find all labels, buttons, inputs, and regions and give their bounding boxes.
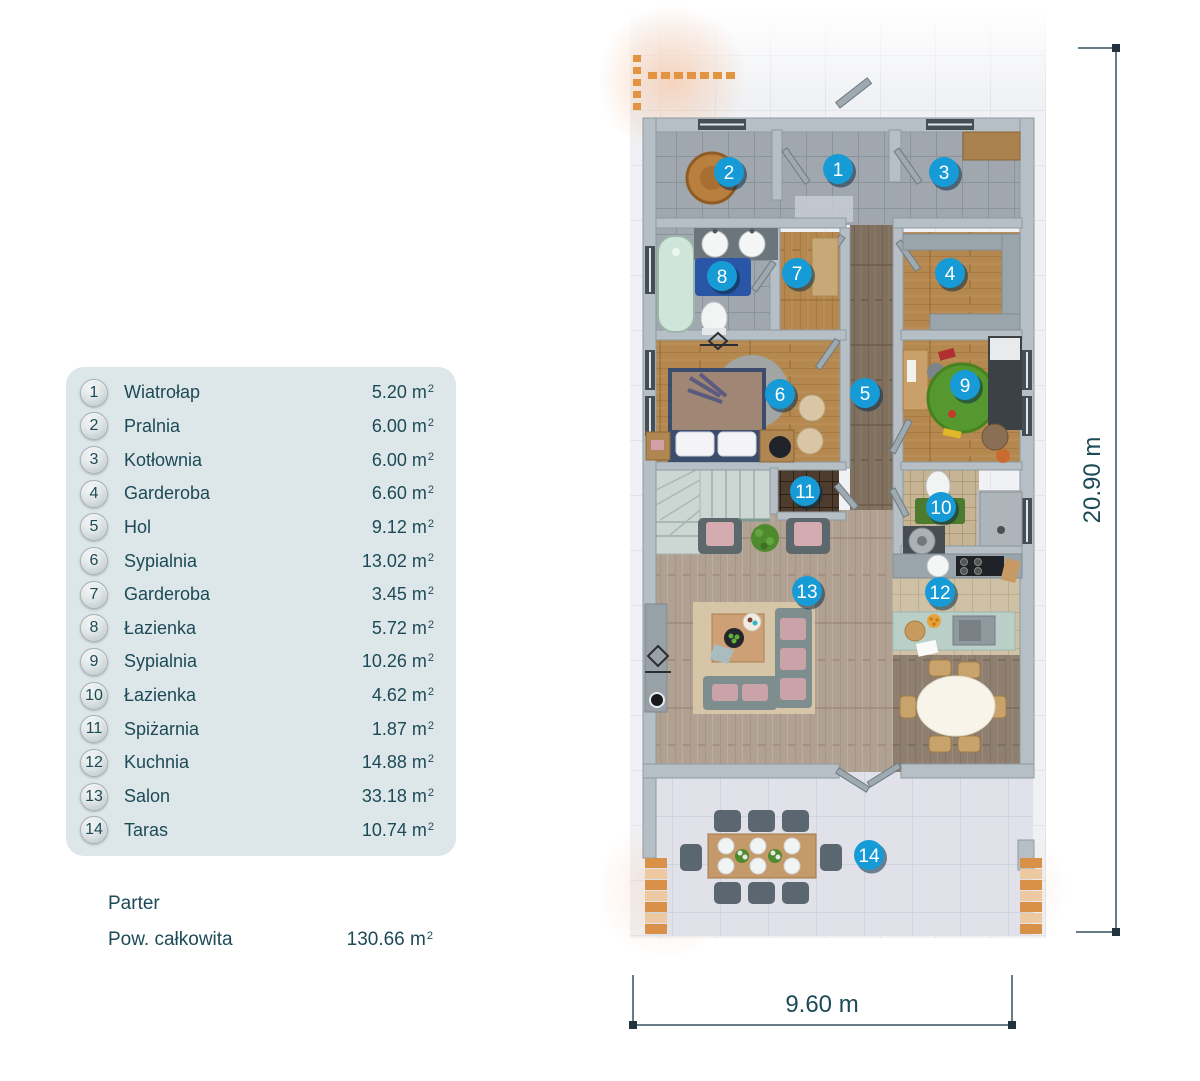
legend-room-name: Sypialnia: [124, 651, 362, 672]
legend-number-badge: 7: [80, 581, 108, 609]
legend-room-area: 6.00 m2: [372, 450, 434, 471]
sofa-pillow: [780, 648, 806, 670]
legend-room-area: 1.87 m2: [372, 719, 434, 740]
svg-text:11: 11: [795, 482, 815, 503]
legend-number-badge: 5: [80, 513, 108, 541]
terrace-chair: [820, 844, 842, 871]
dining-table: [917, 676, 995, 736]
legend-room-area: 6.60 m2: [372, 483, 434, 504]
legend-room-name: Salon: [124, 786, 362, 807]
legend-number-badge: 11: [80, 715, 108, 743]
legend-room-name: Hol: [124, 517, 372, 538]
legend-number-badge: 14: [80, 816, 108, 844]
pillows: [676, 432, 714, 456]
chair: [900, 696, 916, 718]
legend-number-badge: 3: [80, 446, 108, 474]
chair: [929, 736, 951, 752]
chair: [929, 660, 951, 676]
pouf: [982, 424, 1008, 450]
plate: [718, 838, 734, 854]
legend-room-name: Kotłownia: [124, 450, 372, 471]
legend-row: 8 Łazienka 5.72 m2: [74, 613, 434, 643]
legend-row: 3 Kotłownia 6.00 m2: [74, 445, 434, 475]
svg-text:8: 8: [717, 267, 728, 288]
legend-room-area: 4.62 m2: [372, 685, 434, 706]
pouf: [799, 395, 825, 421]
armchair: [786, 518, 830, 554]
legend-room-name: Kuchnia: [124, 752, 362, 773]
legend-row: 11 Spiżarnia 1.87 m2: [74, 714, 434, 744]
bowl: [927, 614, 941, 628]
dimension-width-label: 9.60 m: [785, 991, 858, 1018]
pouf: [797, 428, 823, 454]
pillows: [718, 432, 756, 456]
legend-room-name: Pralnia: [124, 416, 372, 437]
svg-text:3: 3: [939, 163, 950, 184]
legend-row: 13 Salon 33.18 m2: [74, 782, 434, 812]
legend-room-area: 13.02 m2: [362, 551, 434, 572]
terrace-chair: [714, 882, 741, 904]
legend-room-area: 3.45 m2: [372, 584, 434, 605]
legend-number-badge: 1: [80, 379, 108, 407]
svg-text:7: 7: [792, 264, 803, 285]
legend-room-area: 5.72 m2: [372, 618, 434, 639]
svg-text:10: 10: [930, 498, 951, 519]
legend-row: 1 Wiatrołap 5.20 m2: [74, 378, 434, 408]
legend-row: 9 Sypialnia 10.26 m2: [74, 647, 434, 677]
legend-room-area: 14.88 m2: [362, 752, 434, 773]
plate: [718, 858, 734, 874]
dimension-height-label: 20.90 m: [1079, 437, 1106, 524]
sofa-pillow: [712, 684, 738, 701]
legend-room-name: Sypialnia: [124, 551, 362, 572]
legend-room-area: 10.26 m2: [362, 651, 434, 672]
legend-room-name: Łazienka: [124, 685, 372, 706]
plate: [750, 838, 766, 854]
terrace-chair: [782, 810, 809, 832]
floor-plan: 1234567891011121314 20.90 m 9.60 m: [600, 0, 1200, 1081]
tray: [724, 628, 744, 648]
svg-text:13: 13: [796, 582, 817, 603]
legend-room-area: 33.18 m2: [362, 786, 434, 807]
svg-text:2: 2: [724, 163, 735, 184]
legend-room-name: Garderoba: [124, 584, 372, 605]
total-area-line: Pow. całkowita 130.66 m2: [108, 929, 433, 951]
sofa-pillow: [780, 618, 806, 640]
plate: [743, 613, 761, 631]
svg-text:12: 12: [929, 583, 950, 604]
legend-number-badge: 2: [80, 412, 108, 440]
legend-room-name: Spiżarnia: [124, 719, 372, 740]
total-area-label: Pow. całkowita: [108, 929, 233, 951]
total-area-value: 130.66 m2: [347, 929, 433, 951]
legend-room-name: Garderoba: [124, 483, 372, 504]
legend-row: 4 Garderoba 6.60 m2: [74, 479, 434, 509]
plate: [784, 858, 800, 874]
fireplace: [650, 693, 664, 707]
floor-title: Parter: [108, 893, 433, 915]
svg-text:14: 14: [858, 846, 880, 867]
sofa-pillow: [742, 684, 768, 701]
legend-room-area: 6.00 m2: [372, 416, 434, 437]
page: { "legend": { "unit_base": "m", "unit_su…: [0, 0, 1200, 1081]
legend-number-badge: 12: [80, 749, 108, 777]
svg-text:4: 4: [945, 264, 956, 285]
legend-number-badge: 6: [80, 547, 108, 575]
legend-room-area: 9.12 m2: [372, 517, 434, 538]
wardrobe: [812, 238, 838, 296]
floor-summary: Parter Pow. całkowita 130.66 m2: [108, 893, 433, 951]
plate: [905, 621, 925, 641]
legend-row: 5 Hol 9.12 m2: [74, 512, 434, 542]
legend-room-area: 10.74 m2: [362, 820, 434, 841]
legend-room-name: Wiatrołap: [124, 382, 372, 403]
terrace-chair: [782, 882, 809, 904]
sink: [739, 231, 765, 257]
svg-text:1: 1: [833, 160, 844, 181]
svg-text:5: 5: [860, 384, 871, 405]
svg-text:6: 6: [775, 385, 786, 406]
legend-number-badge: 9: [80, 648, 108, 676]
ball: [996, 449, 1010, 463]
legend-row: 6 Sypialnia 13.02 m2: [74, 546, 434, 576]
plate: [750, 858, 766, 874]
armchair: [698, 518, 742, 554]
chair: [958, 736, 980, 752]
terrace-chair: [748, 882, 775, 904]
terrace-chair: [714, 810, 741, 832]
room-legend-panel: 1 Wiatrołap 5.20 m2 2 Pralnia 6.00 m2 3 …: [66, 367, 456, 856]
terrace-chair: [680, 844, 702, 871]
legend-row: 10 Łazienka 4.62 m2: [74, 681, 434, 711]
legend-number-badge: 10: [80, 682, 108, 710]
legend-room-area: 5.20 m2: [372, 382, 434, 403]
shower-tray: [980, 492, 1022, 546]
legend-row: 14 Taras 10.74 m2: [74, 815, 434, 845]
legend-row: 12 Kuchnia 14.88 m2: [74, 748, 434, 778]
terrace-chair: [748, 810, 775, 832]
sink: [702, 231, 728, 257]
legend-row: 2 Pralnia 6.00 m2: [74, 411, 434, 441]
legend-room-name: Łazienka: [124, 618, 372, 639]
legend-number-badge: 8: [80, 614, 108, 642]
legend-number-badge: 4: [80, 480, 108, 508]
toy: [948, 410, 956, 418]
plate: [784, 838, 800, 854]
kitchen-sink: [927, 555, 949, 577]
legend-row: 7 Garderoba 3.45 m2: [74, 580, 434, 610]
boiler-counter: [963, 132, 1020, 160]
sofa-pillow: [780, 678, 806, 700]
chair: [958, 662, 980, 678]
legend-number-badge: 13: [80, 783, 108, 811]
legend-room-name: Taras: [124, 820, 362, 841]
svg-text:9: 9: [960, 376, 971, 397]
